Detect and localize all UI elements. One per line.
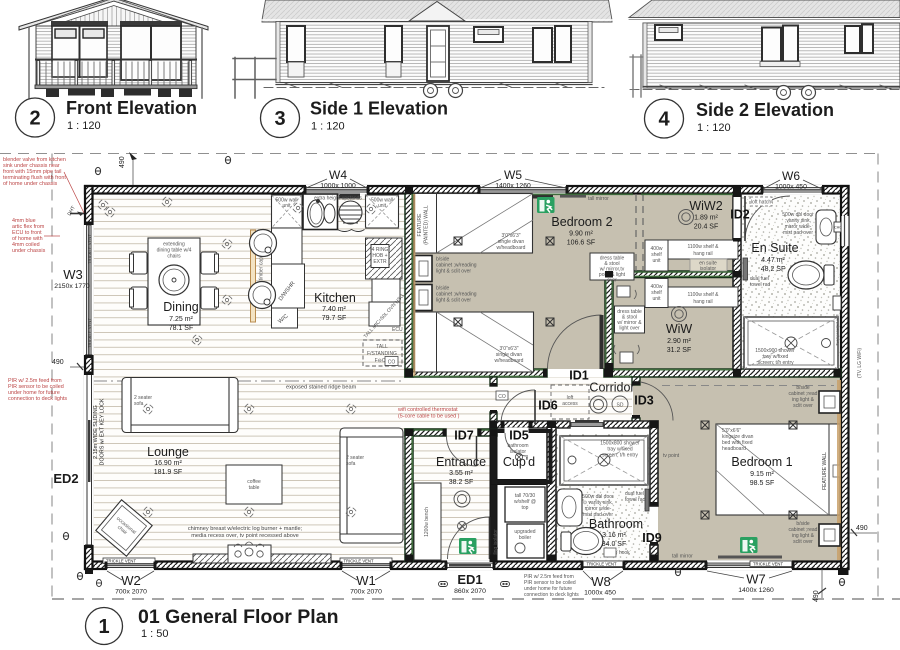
svg-text:ID1: ID1	[569, 369, 589, 383]
svg-text:78.1 SF: 78.1 SF	[169, 325, 194, 332]
svg-text:W7: W7	[746, 572, 766, 587]
svg-text:1 : 120: 1 : 120	[697, 122, 731, 134]
svg-text:light & sclit over: light & sclit over	[436, 298, 471, 304]
svg-text:(5-core cable to be used ): (5-core cable to be used )	[398, 414, 460, 420]
svg-text:2: 2	[29, 108, 40, 130]
svg-text:ID2: ID2	[730, 208, 750, 222]
svg-text:sofa: sofa	[134, 401, 144, 407]
svg-text:1000x 450: 1000x 450	[775, 184, 807, 191]
svg-text:2.90 m²: 2.90 m²	[667, 338, 691, 345]
svg-text:hang rail: hang rail	[693, 251, 712, 257]
svg-text:TRICKLE VENT: TRICKLE VENT	[587, 561, 617, 566]
svg-text:Side 2 Elevation: Side 2 Elevation	[696, 100, 834, 120]
svg-text:unit: unit	[282, 203, 291, 209]
svg-text:3.16 m²: 3.16 m²	[602, 532, 626, 539]
svg-text:1: 1	[98, 616, 109, 638]
svg-text:W4: W4	[329, 168, 347, 182]
svg-text:700x 2070: 700x 2070	[350, 589, 382, 596]
svg-text:sofa: sofa	[346, 461, 356, 467]
svg-text:En Suite: En Suite	[751, 241, 798, 255]
svg-text:towel rad: towel rad	[625, 497, 646, 503]
svg-text:under chassis: under chassis	[12, 248, 46, 254]
svg-text:light over: light over	[619, 326, 640, 332]
svg-text:CO: CO	[498, 394, 506, 400]
svg-text:1 : 120: 1 : 120	[67, 120, 101, 132]
svg-text:FEATURE WALL: FEATURE WALL	[822, 452, 828, 490]
svg-text:2.15m WIDE SLIDING: 2.15m WIDE SLIDING	[93, 405, 99, 459]
svg-text:EXTR: EXTR	[373, 259, 387, 265]
svg-text:headboard: headboard	[722, 446, 746, 452]
svg-text:Corridor: Corridor	[589, 381, 634, 395]
svg-text:79.7 SF: 79.7 SF	[322, 315, 347, 322]
svg-text:20.4 SF: 20.4 SF	[694, 224, 719, 231]
svg-text:screen; t/h entry: screen; t/h entry	[602, 453, 638, 459]
svg-text:490: 490	[813, 590, 820, 602]
svg-text:extra height upstands: extra height upstands	[314, 196, 362, 202]
svg-text:ED2: ED2	[53, 471, 78, 486]
svg-text:towel rad: towel rad	[750, 282, 771, 288]
svg-text:TRICKLE VENT: TRICKLE VENT	[344, 558, 374, 563]
svg-text:tall mirror: tall mirror	[672, 554, 693, 560]
svg-text:38.2 SF: 38.2 SF	[449, 479, 474, 486]
svg-text:chairs: chairs	[167, 254, 181, 260]
svg-text:TALL: TALL	[376, 344, 388, 350]
svg-text:loft hatch: loft hatch	[751, 200, 772, 206]
svg-text:3.55 m²: 3.55 m²	[449, 470, 473, 477]
svg-text:ID6: ID6	[538, 399, 558, 413]
svg-text:31.2 SF: 31.2 SF	[667, 347, 692, 354]
svg-text:9.90 m²: 9.90 m²	[569, 231, 593, 238]
svg-text:ID5: ID5	[509, 429, 529, 443]
svg-text:exposed stained ridge beam: exposed stained ridge beam	[286, 385, 357, 391]
svg-text:DOORS w/ EXT KEY LOCK: DOORS w/ EXT KEY LOCK	[100, 398, 106, 465]
svg-text:4: 4	[658, 109, 670, 131]
svg-text:TRICKLE VENT: TRICKLE VENT	[87, 318, 92, 348]
svg-text:WiW2: WiW2	[689, 199, 722, 213]
svg-text:;screen; t/h entry: ;screen; t/h entry	[756, 360, 794, 366]
svg-text:1400x 1260: 1400x 1260	[738, 587, 774, 594]
svg-text:W8: W8	[591, 574, 611, 589]
svg-text:ECU: ECU	[392, 327, 403, 333]
svg-text:wifi controlled thermostat: wifi controlled thermostat	[397, 407, 458, 413]
svg-text:W5: W5	[504, 168, 522, 182]
svg-text:1200w bench: 1200w bench	[424, 507, 430, 537]
svg-text:W6: W6	[782, 169, 800, 183]
svg-text:7.40 m²: 7.40 m²	[322, 306, 346, 313]
svg-text:1000x 1000: 1000x 1000	[320, 183, 356, 190]
svg-text:9.15 m²: 9.15 m²	[750, 471, 774, 478]
svg-text:W3: W3	[63, 267, 83, 282]
svg-text:Bedroom 1: Bedroom 1	[731, 455, 792, 469]
svg-text:Bathroom: Bathroom	[589, 517, 643, 531]
svg-text:ID3: ID3	[634, 394, 654, 408]
svg-text:106.6 SF: 106.6 SF	[567, 240, 595, 247]
svg-text:4.47 m²: 4.47 m²	[761, 257, 785, 264]
svg-text:48.2 SF: 48.2 SF	[761, 266, 786, 273]
svg-text:WiW: WiW	[666, 322, 693, 336]
svg-text:ID7: ID7	[454, 429, 474, 443]
svg-text:over: over	[607, 278, 617, 284]
svg-text:CO: CO	[388, 360, 396, 366]
svg-text:top: top	[522, 505, 529, 511]
svg-text:Kitchen: Kitchen	[314, 291, 356, 305]
svg-text:light & sclit over: light & sclit over	[436, 269, 471, 275]
svg-text:1100w shelf &: 1100w shelf &	[687, 244, 719, 250]
svg-text:700x 2070: 700x 2070	[115, 589, 147, 596]
svg-text:1 : 50: 1 : 50	[141, 628, 169, 640]
svg-text:1400x 1260: 1400x 1260	[495, 183, 531, 190]
svg-text:SD: SD	[617, 403, 624, 409]
svg-text:Side 1 Elevation: Side 1 Elevation	[310, 99, 448, 119]
svg-text:CHC: CHC	[834, 226, 842, 230]
svg-text:1100w shelf &: 1100w shelf &	[687, 292, 719, 298]
svg-text:connection to deck lights: connection to deck lights	[8, 396, 67, 402]
svg-text:tall mirror: tall mirror	[588, 196, 609, 202]
svg-text:isolator: isolator	[510, 449, 526, 455]
svg-text:1.89 m²: 1.89 m²	[694, 215, 718, 222]
svg-text:chimney breast w/electric log: chimney breast w/electric log burner + m…	[188, 526, 303, 532]
svg-text:Bedroom 2: Bedroom 2	[551, 215, 612, 229]
svg-text:1 : 120: 1 : 120	[311, 121, 345, 133]
svg-text:fixed panelled wall: fixed panelled wall	[836, 314, 840, 345]
svg-text:34.0 SF: 34.0 SF	[602, 541, 627, 548]
svg-text:boiler: boiler	[519, 535, 532, 541]
svg-text:of home under chassis: of home under chassis	[3, 181, 58, 187]
svg-text:01 General Floor Plan: 01 General Floor Plan	[138, 606, 338, 628]
svg-text:7.25 m²: 7.25 m²	[169, 316, 193, 323]
svg-text:TRICKLE VENT: TRICKLE VENT	[87, 234, 92, 264]
svg-text:isolator: isolator	[700, 266, 716, 272]
svg-text:unit: unit	[652, 258, 661, 264]
svg-text:490: 490	[856, 525, 868, 532]
svg-text:W2: W2	[121, 573, 141, 588]
svg-text:98.5 SF: 98.5 SF	[750, 480, 775, 487]
svg-text:860x 2070: 860x 2070	[454, 588, 486, 595]
svg-text:490: 490	[119, 156, 126, 168]
svg-text:ED1: ED1	[457, 572, 482, 587]
svg-text:unit: unit	[652, 296, 661, 302]
svg-text:Front Elevation: Front Elevation	[66, 98, 197, 118]
svg-text:table: table	[249, 485, 260, 491]
svg-text:w/headboard: w/headboard	[495, 358, 524, 364]
svg-text:connection to deck lights: connection to deck lights	[524, 592, 579, 598]
svg-text:hang rail: hang rail	[693, 299, 712, 305]
svg-text:W1: W1	[356, 573, 376, 588]
svg-text:sclit over: sclit over	[793, 539, 813, 545]
svg-text:(PAINTED) WALL: (PAINTED) WALL	[424, 205, 430, 245]
svg-text:1000x 450: 1000x 450	[584, 590, 616, 597]
svg-text:TRICKLE VENT: TRICKLE VENT	[753, 561, 783, 566]
svg-text:w/headboard: w/headboard	[497, 245, 526, 251]
svg-text:access: access	[562, 401, 578, 407]
svg-text:490: 490	[52, 359, 64, 366]
svg-text:TRICKLE VENT: TRICKLE VENT	[106, 558, 136, 563]
svg-text:mist pad over: mist pad over	[783, 230, 813, 236]
svg-text:181.9 SF: 181.9 SF	[154, 469, 182, 476]
svg-text:3: 3	[274, 108, 285, 130]
svg-text:(TV, LG WiFi): (TV, LG WiFi)	[857, 348, 863, 378]
svg-text:sclit over: sclit over	[793, 403, 813, 409]
svg-text:16.90 m²: 16.90 m²	[154, 460, 182, 467]
svg-text:unit: unit	[378, 203, 387, 209]
svg-text:tv point: tv point	[663, 453, 680, 459]
svg-text:Lounge: Lounge	[147, 445, 189, 459]
svg-text:media recess over, tv point re: media recess over, tv point recessed abo…	[191, 533, 299, 539]
svg-text:2150x 1770: 2150x 1770	[54, 283, 90, 290]
svg-text:FEATURE: FEATURE	[417, 213, 423, 237]
svg-text:Dining: Dining	[163, 300, 198, 314]
